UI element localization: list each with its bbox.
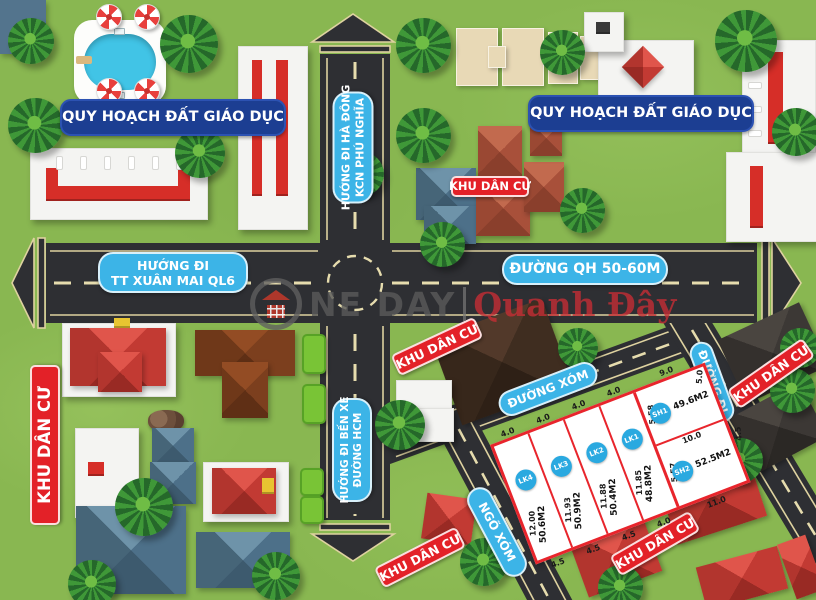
watermark: NE DAY Quanh Đây: [250, 278, 676, 330]
hedge: [300, 468, 324, 496]
roof-vent: [152, 156, 159, 170]
palm-tree: [540, 30, 585, 75]
plot-badge: LK3: [548, 453, 575, 480]
palm-tree: [8, 98, 63, 153]
direction-text: ĐƯỜNG HCM: [352, 413, 365, 488]
roof-vent: [80, 156, 87, 170]
roof-vent: [104, 156, 111, 170]
roof-vent: [748, 130, 762, 137]
palm-tree: [252, 552, 300, 600]
pool-ladder: [114, 28, 125, 35]
dim-right: 4.5: [733, 426, 743, 441]
plot-badge: SH2: [669, 457, 696, 484]
residential-label-left: KHU DÂN CƯ: [30, 365, 60, 525]
direction-text: KCN PHÚ NGHĨA: [353, 98, 366, 197]
apartment-roof: [750, 166, 763, 228]
direction-label-hadong: HƯỚNG ĐI HÀ ĐÔNG KCN PHÚ NGHĨA: [333, 92, 374, 204]
direction-label-xuanmai: HƯỚNG ĐI TT XUÂN MAI QL6: [98, 252, 248, 293]
residential-text: KHU DÂN CƯ: [35, 386, 55, 504]
residential-text: KHU DÂN CƯ: [449, 180, 531, 194]
residential-label-top: KHU DÂN CƯ: [451, 176, 529, 197]
palm-tree: [8, 18, 54, 64]
watermark-slogan: Quanh Đây: [473, 285, 676, 324]
apartment-roof: [46, 186, 190, 201]
apartment-roof: [46, 168, 58, 201]
palm-tree: [560, 188, 605, 233]
education-zone-text: QUY HOẠCH ĐẤT GIÁO DỤC: [530, 105, 752, 122]
annex-door: [596, 22, 610, 34]
palm-tree: [420, 222, 465, 267]
arrow-left: [12, 238, 34, 328]
palm-tree: [375, 400, 425, 450]
umbrella-icon: [134, 4, 160, 30]
apartment-building: [238, 46, 308, 230]
villa-gable: [98, 352, 142, 392]
diving-board: [76, 56, 92, 64]
plot-area: 50.6M2: [537, 506, 549, 544]
plot-area: 50.4M2: [608, 478, 620, 516]
plot-badge: LK4: [512, 466, 539, 493]
roof-vent: [128, 156, 135, 170]
direction-label-benxe: HƯỚNG ĐI BẾN XE ĐƯỜNG HCM: [332, 398, 372, 502]
watermark-brand: NE DAY: [309, 285, 456, 324]
hedge: [300, 496, 324, 524]
arrow-down: [312, 534, 394, 561]
palm-tree: [558, 328, 598, 368]
building-accent: [88, 462, 104, 476]
education-zone-label-left: QUY HOẠCH ĐẤT GIÁO DỤC: [60, 99, 286, 136]
watermark-divider: [463, 287, 466, 321]
plot-area: 50.9M2: [572, 492, 584, 530]
plot-badge: SH1: [647, 399, 674, 426]
plot-area: 49.6M2: [672, 390, 711, 413]
hedge: [302, 334, 326, 374]
oneday-logo-icon: [250, 278, 302, 330]
education-zone-label-right: QUY HOẠCH ĐẤT GIÁO DỤC: [528, 95, 754, 132]
direction-text: TT XUÂN MAI QL6: [111, 273, 235, 288]
roof-vent: [56, 156, 63, 170]
palm-tree: [68, 560, 116, 600]
beige-building: [488, 46, 506, 68]
direction-text: HƯỚNG ĐI: [137, 258, 209, 273]
direction-text: HƯỚNG ĐI BẾN XE: [339, 396, 352, 503]
dim-side: 11.93: [563, 497, 573, 523]
hedge: [302, 384, 326, 424]
umbrella-icon: [96, 4, 122, 30]
dim-side: 11.88: [598, 484, 608, 510]
beige-building: [502, 28, 544, 86]
palm-tree: [396, 108, 451, 163]
palm-tree: [396, 18, 451, 73]
plot-badge: LK2: [583, 439, 610, 466]
road-name-text: ĐƯỜNG QH 50-60M: [510, 261, 661, 278]
house: [478, 126, 522, 178]
palm-tree: [115, 478, 173, 536]
roof-vent: [748, 82, 762, 89]
plot-area: 52.5M2: [694, 448, 733, 471]
dim-side: 12.00: [528, 511, 538, 537]
palm-tree: [772, 108, 816, 156]
direction-text: HƯỚNG ĐI HÀ ĐÔNG: [340, 85, 353, 211]
villa-chimney: [114, 318, 130, 328]
plot-badge: LK1: [618, 425, 645, 452]
brown-building: [222, 362, 268, 418]
real-estate-map: QUY HOẠCH ĐẤT GIÁO DỤC QUY HOẠCH ĐẤT GIÁ…: [0, 0, 816, 600]
plot-area: 48.8M2: [643, 465, 655, 503]
dim-side: 11.85: [634, 470, 644, 496]
education-zone-text: QUY HOẠCH ĐẤT GIÁO DỤC: [62, 109, 284, 126]
house: [152, 428, 194, 464]
villa-door: [262, 478, 274, 494]
palm-tree: [715, 10, 777, 72]
arrow-up: [312, 14, 394, 42]
apartment-building: [726, 152, 816, 242]
palm-tree: [160, 15, 218, 73]
